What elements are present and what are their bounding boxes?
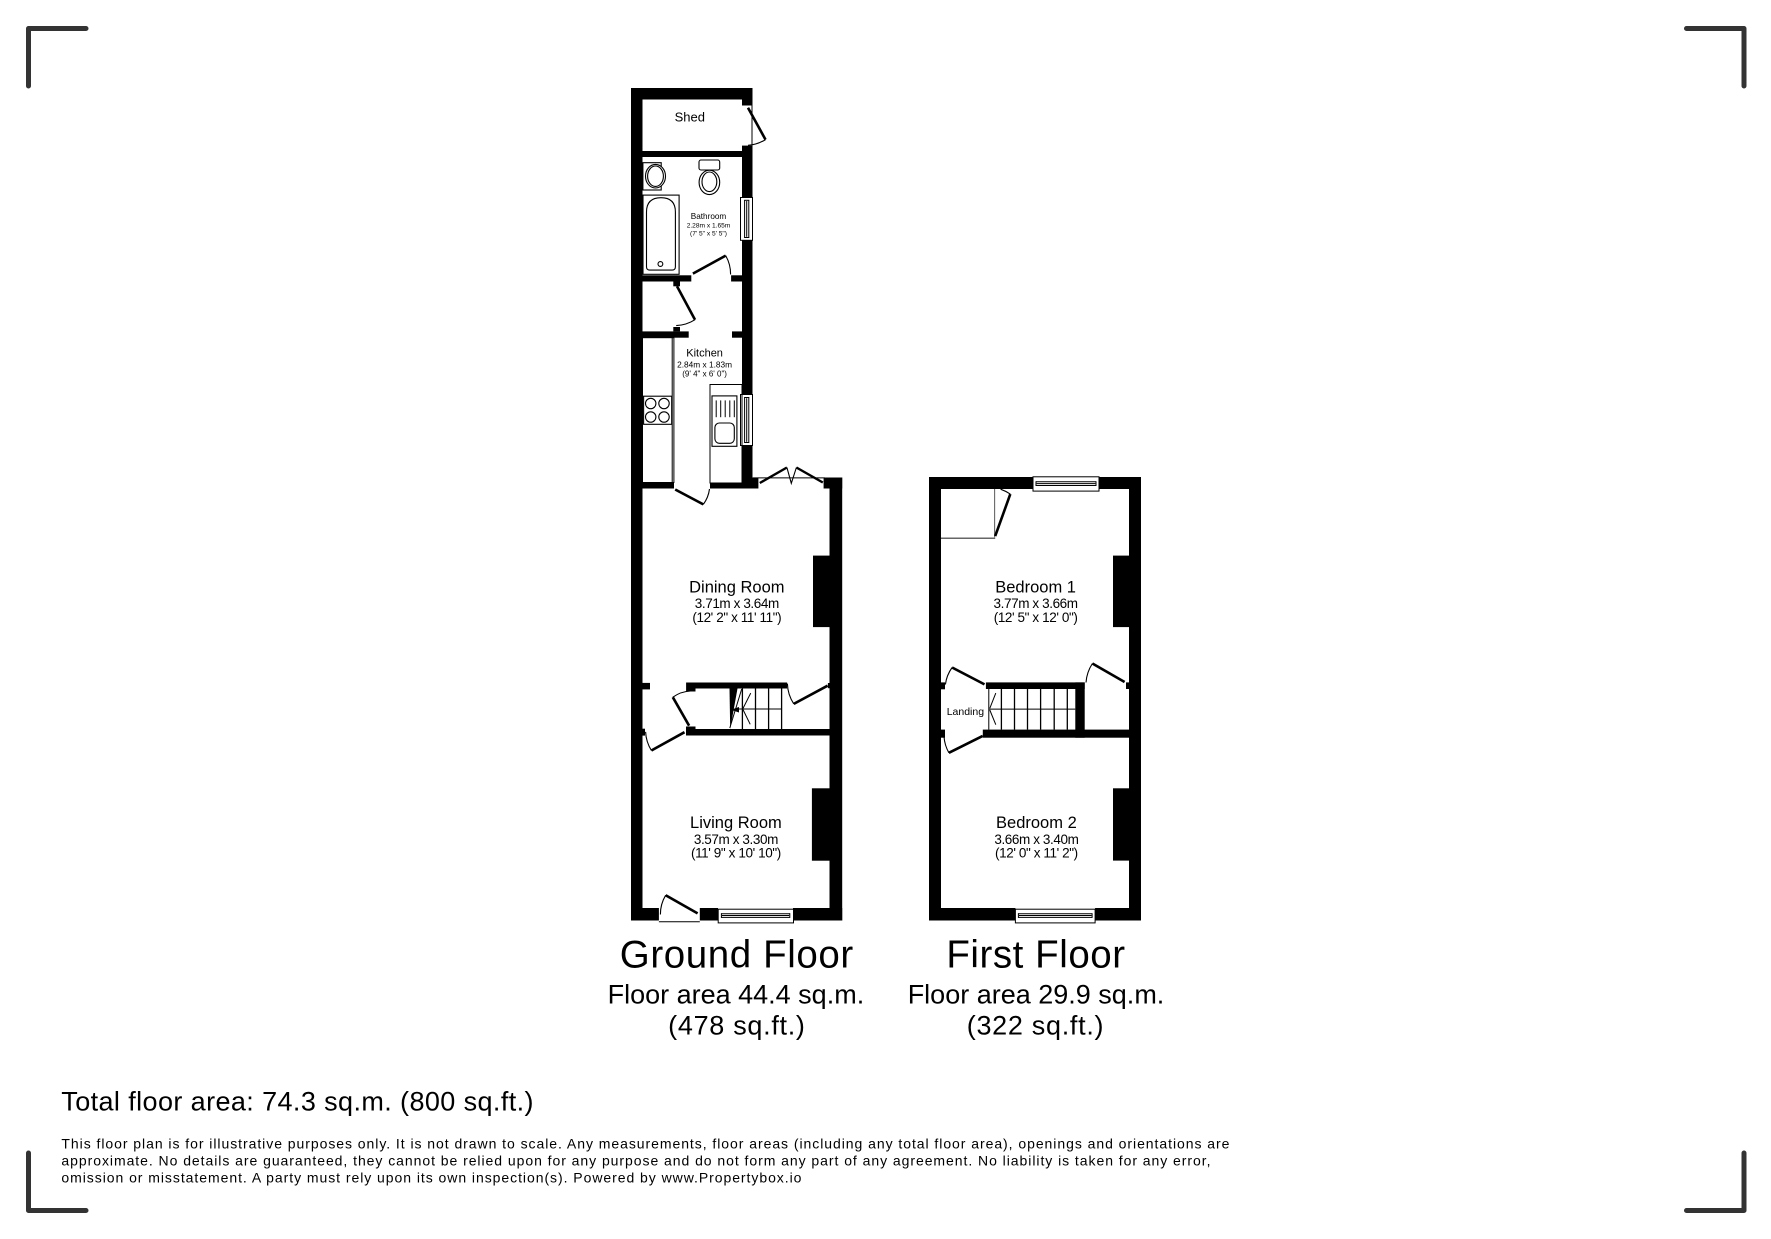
- svg-text:Bathroom: Bathroom: [691, 212, 727, 221]
- svg-text:This floor plan is for illustr: This floor plan is for illustrative purp…: [61, 1136, 1230, 1152]
- svg-text:2.84m x 1.83m: 2.84m x 1.83m: [677, 359, 732, 369]
- svg-text:Living Room: Living Room: [690, 814, 782, 832]
- svg-text:Ground Floor: Ground Floor: [620, 934, 854, 977]
- svg-text:Bedroom 2: Bedroom 2: [996, 814, 1077, 832]
- svg-text:First Floor: First Floor: [946, 934, 1125, 977]
- svg-text:Floor area 44.4 sq.m.: Floor area 44.4 sq.m.: [608, 980, 865, 1010]
- svg-text:(9' 4" x 6' 0"): (9' 4" x 6' 0"): [682, 369, 727, 378]
- svg-text:Dining Room: Dining Room: [689, 578, 784, 596]
- svg-text:Shed: Shed: [675, 110, 705, 125]
- svg-text:(12' 0" x 11' 2"): (12' 0" x 11' 2"): [995, 845, 1078, 860]
- svg-text:(322 sq.ft.): (322 sq.ft.): [967, 1011, 1104, 1041]
- svg-text:omission or misstatement. A pa: omission or misstatement. A party must r…: [61, 1170, 802, 1186]
- svg-text:Total floor area: 74.3 sq.m. (: Total floor area: 74.3 sq.m. (800 sq.ft.…: [61, 1087, 534, 1117]
- svg-text:Landing: Landing: [947, 706, 985, 718]
- svg-text:(7' 5" x 5' 5"): (7' 5" x 5' 5"): [690, 230, 727, 237]
- svg-text:approximate. No details are gu: approximate. No details are guaranteed, …: [61, 1153, 1211, 1169]
- svg-text:2.28m x 1.65m: 2.28m x 1.65m: [687, 223, 731, 230]
- svg-text:(11' 9" x 10' 10"): (11' 9" x 10' 10"): [691, 845, 781, 860]
- svg-text:Floor area 29.9 sq.m.: Floor area 29.9 sq.m.: [908, 980, 1165, 1010]
- svg-text:Bedroom 1: Bedroom 1: [995, 578, 1076, 596]
- svg-text:(12' 5" x 12' 0"): (12' 5" x 12' 0"): [994, 610, 1078, 625]
- svg-text:(478 sq.ft.): (478 sq.ft.): [668, 1011, 805, 1041]
- svg-text:(12' 2" x 11' 11"): (12' 2" x 11' 11"): [692, 610, 781, 625]
- svg-text:Kitchen: Kitchen: [686, 348, 723, 360]
